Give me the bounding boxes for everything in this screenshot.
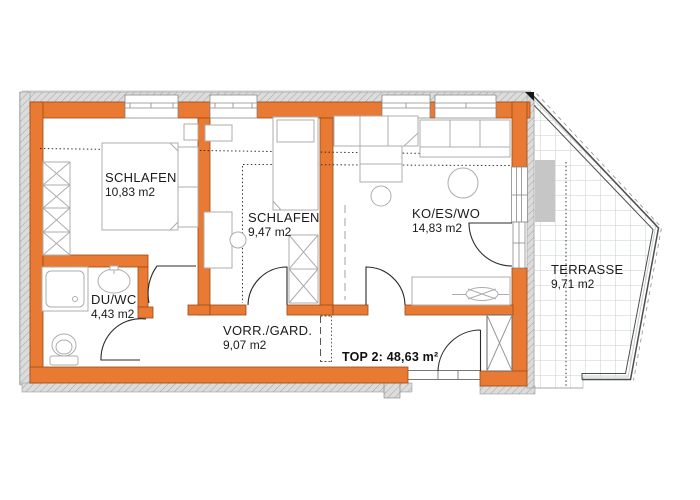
- wall-top-2: [178, 102, 210, 118]
- floor-plan-drawing: [0, 0, 700, 500]
- entrance-threshold: [408, 370, 480, 380]
- sofa: [420, 120, 510, 157]
- wall-corner-southeast: [480, 371, 527, 386]
- wall-corridor-4: [405, 305, 513, 315]
- bed-schlafen-1: [102, 124, 198, 230]
- door-wohnen: [366, 267, 405, 305]
- wall-corridor-2: [287, 305, 333, 315]
- sideboard: [412, 277, 510, 305]
- terrace-tiles: [534, 100, 656, 388]
- window-terrace: [512, 167, 528, 222]
- wall-left: [30, 102, 43, 383]
- wardrobe-schlafen-2: [289, 235, 318, 303]
- kitchen-stool: [371, 186, 391, 206]
- sink: [98, 266, 130, 293]
- furniture: [42, 116, 510, 365]
- window-schlafen-2: [210, 95, 257, 118]
- door-duwc: [101, 319, 146, 360]
- terrace-mat: [535, 160, 555, 222]
- window-wohnen-1: [382, 95, 430, 118]
- shower: [42, 267, 88, 311]
- terrace-area: [530, 94, 662, 389]
- bed-schlafen-2: [273, 117, 318, 210]
- desk-schlafen-2: [204, 212, 246, 268]
- unit-area-label: TOP 2: 48,63 m²: [342, 350, 438, 364]
- door-schlafen-2: [248, 267, 287, 305]
- wall-duwc-right: [138, 267, 148, 309]
- insulation-bottom: [22, 383, 412, 392]
- dining-table: [448, 168, 478, 198]
- kitchen-counter: [334, 116, 418, 182]
- wall-divider-schlafen-foot: [188, 305, 210, 315]
- shelf-schlafen-2: [205, 125, 232, 141]
- window-schlafen-1: [125, 95, 178, 118]
- wardrobe-schlafen-1: [43, 162, 70, 255]
- wall-corridor-3: [333, 305, 368, 315]
- insulation-left: [20, 92, 30, 385]
- insulation-right: [527, 97, 534, 388]
- door-schlafen-1: [148, 266, 196, 303]
- shaft: [487, 315, 512, 371]
- wall-duwc-top: [43, 255, 148, 267]
- wall-divider-wohnen: [320, 118, 333, 315]
- entrance-step-hatch: [384, 383, 400, 398]
- toilet: [50, 334, 78, 365]
- wall-duwc-right-foot: [138, 307, 153, 318]
- wall-bottom: [30, 367, 408, 383]
- wall-top-1: [30, 102, 125, 118]
- terrace-door-glass: [513, 222, 525, 268]
- wall-right-bottom: [512, 268, 527, 375]
- wall-right-top: [512, 102, 527, 167]
- door-terrace: [469, 223, 512, 266]
- window-wohnen-2: [435, 95, 496, 118]
- door-entrance: [438, 330, 481, 371]
- floor-plan: SCHLAFEN 10,83 m2 SCHLAFEN 9,47 m2 KO/ES…: [0, 0, 700, 500]
- wall-corridor-1: [210, 305, 246, 315]
- wall-top-mullion: [430, 102, 435, 118]
